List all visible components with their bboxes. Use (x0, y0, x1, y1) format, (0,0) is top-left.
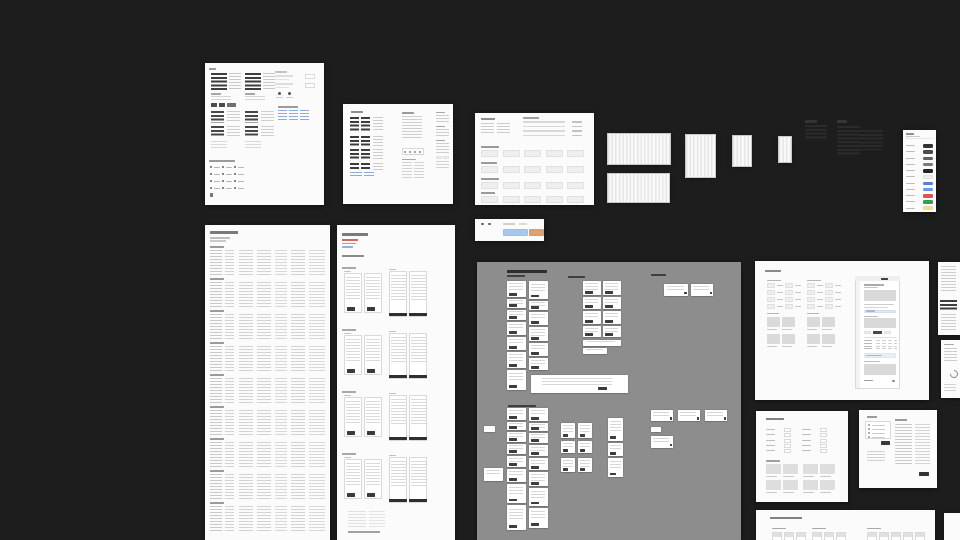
flow-column-header (568, 276, 585, 278)
artboard-components-overview--bar (888, 343, 892, 344)
artboard-grid-desktop-wide[interactable] (608, 134, 670, 164)
artboard-user-flow--card (507, 456, 526, 467)
artboard-text-specs--rows (350, 172, 362, 177)
artboard-input-forms-spec--rows (275, 442, 287, 467)
artboard-input-forms-spec--rows (257, 410, 271, 435)
artboard-input-forms-spec--rows (210, 442, 222, 467)
artboard-settings-blocks--bar (783, 476, 794, 477)
artboard-settings-blocks--outline (820, 428, 827, 432)
artboard-modal-spec--dot (868, 428, 870, 430)
artboard-components-overview--pill (807, 290, 815, 295)
artboard-components-overview--bar (777, 306, 783, 307)
artboard-color-palette--bar (906, 195, 915, 196)
artboard-card-layouts-spec--bar (344, 457, 351, 458)
artboard-table-cards--img (785, 533, 793, 537)
artboard-form-controls--pill (503, 182, 520, 189)
artboard-card-layouts-spec--rows (366, 339, 380, 361)
artboard-typography-styles--bar (209, 68, 216, 70)
artboard-input-forms-spec--rows (291, 282, 305, 307)
artboard-input-forms-spec--rows (291, 410, 305, 435)
artboard-typography-styles--bar (214, 188, 220, 189)
artboard-form-controls--pill (546, 150, 563, 157)
artboard-form-controls--pill (567, 182, 584, 189)
artboard-color-palette--bar (906, 176, 915, 177)
artboard-user-flow--card (507, 310, 526, 320)
design-canvas[interactable] (0, 0, 960, 540)
artboard-components-overview--img (782, 317, 795, 327)
artboard-settings-blocks--outline (820, 449, 827, 453)
artboard-card-layouts-spec--bar (348, 531, 380, 533)
artboard-user-flow--card (583, 281, 601, 295)
artboard-components-overview--bar (777, 292, 783, 293)
artboard-form-controls--bar (523, 126, 565, 128)
artboard-components-overview--bar (817, 306, 823, 307)
artboard-input-forms-spec--bar (210, 246, 224, 248)
artboard-form-controls--pill (503, 150, 520, 157)
artboard-text-specs--bars (361, 136, 370, 146)
artboard-form-controls--bar (481, 178, 499, 180)
artboard-form-controls--bar (572, 135, 582, 137)
artboard-color-palette--bar (906, 170, 915, 171)
artboard-components-overview--bar (876, 340, 880, 341)
artboard-components-overview--pill (767, 304, 775, 309)
artboard-input-forms-spec--bar (210, 502, 224, 504)
artboard-components-overview--pill (825, 297, 833, 302)
artboard-modal-spec--dot (868, 424, 870, 426)
artboard-settings-blocks--bar (766, 476, 777, 477)
artboard-text-specs--bar (402, 112, 414, 114)
artboard-form-controls--pill (524, 166, 541, 173)
artboard-components-overview--bar (767, 346, 777, 347)
artboard-input-forms-spec--rows (225, 314, 234, 339)
flow-title (507, 270, 547, 273)
artboard-typography-styles--rows (261, 111, 274, 123)
artboard-settings-blocks--bar (803, 476, 814, 477)
sample-button-orange (529, 229, 544, 236)
artboard-modal-spec--bar (872, 437, 885, 438)
artboard-input-forms-spec--rows (309, 442, 325, 467)
artboard-user-flow--cardp (484, 468, 503, 481)
artboard-user-flow--cardw (678, 410, 700, 421)
artboard-card-layouts-spec--rows (366, 463, 380, 485)
artboard-partial-right-top[interactable] (938, 262, 960, 335)
artboard-components-overview[interactable] (755, 261, 929, 400)
artboard-grid-mobile-small[interactable] (779, 137, 791, 162)
artboard-typography-styles--bars (211, 111, 224, 123)
artboard-components-overview--bar (777, 285, 783, 286)
artboard-partial-right-mid--rows (944, 384, 956, 392)
artboard-settings-blocks--img (766, 464, 781, 474)
artboard-typography-styles--bar (226, 188, 232, 189)
artboard-typography-styles--dot (222, 173, 224, 175)
artboard-input-forms-spec--rows (257, 506, 271, 531)
artboard-typography-styles--bar (238, 167, 244, 168)
artboard-text-specs--rows (373, 117, 383, 131)
artboard-input-forms-spec--rows (239, 282, 253, 307)
artboard-components-overview--bar (817, 299, 823, 300)
artboard-input-forms-spec[interactable] (205, 225, 330, 540)
artboard-components-overview--bar (807, 313, 819, 314)
artboard-color-palette--bar (906, 189, 915, 190)
artboard-settings-blocks--bar (802, 434, 811, 435)
artboard-text-specs[interactable] (343, 104, 453, 204)
artboard-card-layouts-spec--bar (342, 239, 358, 241)
artboard-text-specs--bar (402, 159, 416, 160)
artboard-components-overview--img (807, 317, 820, 327)
artboard-modal-spec--bar (872, 433, 885, 434)
artboard-input-forms-spec--bar (210, 310, 224, 312)
artboard-card-layouts-spec--bar (344, 333, 351, 334)
artboard-typography-styles--dot (210, 173, 212, 175)
artboard-typography-styles--outline (305, 83, 315, 88)
artboard-table-cards--bar (812, 528, 826, 530)
artboard-input-forms-spec--rows (225, 282, 234, 307)
artboard-typography-styles--bar (275, 71, 287, 73)
artboard-color-palette--bar (906, 138, 933, 139)
artboard-typography-styles--dot (210, 166, 212, 168)
artboard-modal-spec--bar (872, 425, 885, 426)
artboard-card-layouts-spec--btn (389, 499, 407, 503)
artboard-modal-spec--btn (919, 472, 929, 476)
artboard-components-overview--bar (864, 340, 872, 341)
artboard-settings-blocks--outline (820, 439, 827, 443)
artboard-table-cards--img (837, 533, 845, 537)
artboard-typography-styles--dot (234, 173, 236, 175)
artboard-typography-styles--dot (222, 180, 224, 182)
artboard-input-forms-spec--rows (210, 282, 222, 307)
artboard-user-flow--card (507, 432, 526, 442)
artboard-components-overview--bar (767, 329, 777, 330)
artboard-form-controls--bar (523, 135, 565, 137)
dark-theme-text-samples[interactable] (800, 112, 900, 164)
artboard-typography-styles--bars (211, 73, 227, 90)
artboard-text-specs--rows (436, 161, 449, 170)
artboard-user-flow--card (583, 326, 601, 337)
artboard-modal-spec--bar (895, 419, 907, 421)
artboard-user-flow--card (507, 281, 526, 297)
artboard-typography-styles[interactable] (205, 63, 324, 205)
artboard-settings-blocks--img (783, 480, 798, 490)
artboard-typography-styles--bar (219, 103, 225, 107)
artboard-card-layouts-spec--bar (389, 393, 396, 394)
artboard-input-forms-spec--rows (291, 506, 305, 531)
artboard-typography-styles--bar (214, 167, 220, 168)
artboard-card-layouts-spec--bar (389, 269, 396, 270)
artboard-card-layouts-spec--btn (347, 431, 355, 435)
image-placeholder (864, 364, 896, 375)
artboard-input-forms-spec--rows (225, 410, 234, 435)
artboard-typography-styles--bar (211, 103, 217, 107)
artboard-card-layouts-spec--btn (367, 493, 375, 497)
artboard-settings-blocks--img (820, 464, 835, 474)
artboard-components-overview--bar (864, 287, 878, 288)
artboard-text-specs--bars (361, 117, 370, 131)
artboard-settings-blocks--bar (766, 440, 775, 441)
artboard-form-controls--bar (572, 130, 582, 132)
artboard-text-specs--pill (436, 156, 442, 159)
artboard-input-forms-spec--rows (225, 346, 234, 371)
artboard-settings-blocks--bar (766, 418, 784, 420)
artboard-typography-styles--bar (226, 167, 232, 168)
artboard-input-forms-spec--rows (210, 410, 222, 435)
artboard-typography-styles--bar (275, 75, 293, 77)
artboard-text-specs--rows (402, 162, 412, 178)
artboard-grid-tablet[interactable] (686, 135, 715, 177)
artboard-settings-blocks--outline (820, 444, 827, 448)
artboard-components-overview--bar (864, 304, 894, 305)
artboard-input-forms-spec--rows (239, 346, 253, 371)
artboard-input-forms-spec--bar (210, 438, 224, 440)
artboard-form-controls--pill (524, 196, 541, 203)
artboard-input-forms-spec--rows (309, 250, 325, 275)
artboard-settings-blocks--img (803, 480, 818, 490)
artboard-input-forms-spec--rows (309, 506, 325, 531)
artboard-typography-styles--bar (275, 83, 293, 85)
artboard-typography-styles--rows (278, 110, 287, 121)
artboard-settings-blocks--bar (802, 440, 811, 441)
artboard-typography-styles--dot (222, 187, 224, 189)
artboard-settings-blocks--img (820, 480, 835, 490)
artboard-typography-styles--bar (286, 97, 293, 98)
artboard-typography-styles--bar (214, 181, 220, 182)
artboard-typography-styles--bars (211, 126, 224, 137)
artboard-input-forms-spec--rows (210, 474, 222, 499)
artboard-typography-styles--outline (305, 74, 315, 79)
artboard-color-palette--swatch (923, 175, 933, 179)
artboard-card-layouts-spec--bar (342, 267, 356, 269)
artboard-card-layouts-spec--rows (346, 277, 360, 299)
artboard-input-forms-spec--rows (210, 250, 222, 275)
artboard-components-overview--pill (785, 304, 793, 309)
artboard-typography-styles--rows (227, 126, 240, 137)
artboard-user-flow--chip (651, 427, 661, 432)
artboard-table-cards--img (868, 533, 876, 537)
artboard-table-cards--img (825, 533, 833, 537)
artboard-form-controls[interactable] (475, 113, 594, 205)
artboard-user-flow--card (578, 441, 592, 453)
artboard-grid-desktop[interactable] (608, 174, 669, 202)
artboard-components-overview--img (822, 317, 835, 327)
artboard-card-layouts-spec[interactable] (337, 225, 455, 540)
artboard-settings-blocks--outline (784, 449, 791, 453)
artboard-components-overview--bar (882, 340, 886, 341)
artboard-card-layouts-spec--rows (391, 275, 406, 301)
artboard-card-layouts-spec--bar (389, 455, 396, 456)
artboard-text-specs--rows (373, 163, 383, 170)
artboard-card-layouts-spec--rows (366, 401, 380, 423)
artboard-partial-right-mid--rows (944, 348, 957, 362)
artboard-card-layouts-spec--btn (389, 437, 407, 441)
artboard-components-overview--pill (825, 283, 833, 288)
artboard-components-overview--bar (864, 346, 872, 347)
artboard-form-controls--bar (523, 121, 565, 123)
artboard-input-forms-spec--bar (210, 406, 224, 408)
artboard-input-forms-spec--bar (210, 231, 238, 234)
artboard-input-forms-spec--rows (257, 314, 271, 339)
artboard-typography-styles--bars (245, 126, 258, 137)
flow-wide-card (531, 375, 628, 393)
artboard-user-flow--cardp (583, 348, 607, 354)
artboard-table-cards--img (892, 533, 900, 537)
artboard-color-palette[interactable] (903, 130, 936, 212)
artboard-partial-bottom-right[interactable] (944, 513, 960, 540)
artboard-input-forms-spec--rows (275, 474, 287, 499)
artboard-components-overview--bar (807, 346, 817, 347)
artboard-components-overview--img (782, 334, 795, 344)
artboard-text-specs--bars (350, 163, 359, 170)
artboard-user-flow--card (529, 508, 548, 528)
artboard-typography-styles--bars (245, 111, 258, 123)
artboard-components-overview--btn (881, 278, 888, 281)
artboard-color-palette--bar (906, 133, 914, 135)
artboard-form-controls--bar (572, 121, 582, 123)
artboard-form-controls--bar (523, 130, 565, 132)
artboard-input-forms-spec--rows (309, 410, 325, 435)
artboard-components-overview--bar (835, 299, 841, 300)
artboard-input-forms-spec--rows (275, 378, 287, 403)
artboard-components-overview--bar (864, 307, 888, 308)
artboard-color-palette--swatch (923, 194, 933, 198)
artboard-user-flow--card (603, 326, 621, 337)
artboard-components-overview--bar (767, 313, 779, 314)
artboard-settings-blocks--outline (820, 433, 827, 437)
artboard-form-controls--pill (567, 196, 584, 203)
artboard-card-layouts-spec--btn (409, 313, 427, 317)
artboard-card-layouts-spec--rows (391, 399, 406, 425)
artboard-user-flow--card (507, 337, 526, 350)
artboard-typography-styles--dot (210, 180, 212, 182)
artboard-input-forms-spec--rows (257, 474, 271, 499)
artboard-form-controls--pill (546, 182, 563, 189)
artboard-form-controls--pill (481, 166, 498, 173)
artboard-card-layouts-spec--btn (347, 307, 355, 311)
artboard-text-specs--bar (436, 112, 445, 113)
artboard-button-samples--dot (481, 223, 484, 226)
artboard-input-forms-spec--bar (210, 470, 224, 472)
flow-section-header (508, 405, 536, 407)
artboard-modal-spec--bar (867, 416, 877, 418)
artboard-table-cards--img (880, 533, 888, 537)
artboard-input-forms-spec--bar (210, 342, 224, 344)
artboard-user-flow--card (529, 358, 548, 370)
artboard-input-forms-spec--rows (291, 346, 305, 371)
artboard-components-overview--bar (864, 343, 872, 344)
artboard-input-forms-spec--rows (275, 282, 287, 307)
artboard-input-forms-spec--bar (210, 278, 224, 280)
artboard-input-forms-spec--rows (225, 250, 234, 275)
artboard-card-layouts-spec--rows (369, 511, 385, 527)
artboard-color-palette--bar (906, 164, 915, 165)
artboard-button-samples--bar (503, 223, 515, 225)
artboard-components-overview--bar (876, 346, 880, 347)
artboard-card-layouts-spec--bar (342, 246, 353, 248)
artboard-components-overview--bar (876, 343, 880, 344)
artboard-components-overview--bar (864, 361, 880, 362)
artboard-color-palette--swatch (923, 182, 933, 186)
artboard-settings-blocks--img (783, 464, 798, 474)
artboard-text-specs--bars (350, 136, 359, 146)
artboard-settings-blocks--bar (820, 476, 831, 477)
artboard-card-layouts-spec--bar (344, 271, 351, 272)
artboard-input-forms-spec--rows (291, 250, 305, 275)
artboard-typography-styles--bar (214, 174, 220, 175)
artboard-user-flow[interactable] (477, 262, 741, 540)
artboard-user-flow--card (603, 311, 621, 324)
artboard-modal-spec[interactable] (859, 410, 937, 488)
artboard-input-forms-spec--rows (257, 346, 271, 371)
artboard-grid-mobile[interactable] (733, 136, 751, 166)
artboard-input-forms-spec--rows (275, 250, 287, 275)
artboard-input-forms-spec--rows (275, 346, 287, 371)
artboard-user-flow--card (529, 408, 548, 421)
artboard-settings-blocks--outline (784, 444, 791, 448)
artboard-table-cards--bar (867, 528, 881, 530)
artboard-input-forms-spec--rows (210, 346, 222, 371)
artboard-user-flow--card (529, 433, 548, 443)
artboard-card-layouts-spec--btn (409, 375, 427, 379)
artboard-typography-styles--rows (229, 73, 241, 90)
artboard-user-flow--card (561, 441, 575, 453)
artboard-input-forms-spec--rows (257, 442, 271, 467)
artboard-input-forms-spec--rows (239, 250, 253, 275)
artboard-user-flow--card (529, 281, 548, 299)
artboard-text-specs--rows (414, 162, 424, 178)
artboard-color-palette--bar (906, 183, 915, 184)
artboard-modal-spec--rows (867, 451, 885, 462)
artboard-components-overview--bar (777, 299, 783, 300)
artboard-components-overview--bar (807, 280, 821, 281)
artboard-user-flow--card (578, 423, 592, 438)
artboard-form-controls--pill (481, 182, 498, 189)
artboard-color-palette--swatch (923, 157, 933, 161)
artboard-components-overview--bar (822, 346, 832, 347)
artboard-partial-right-mid--bar (944, 344, 954, 345)
artboard-components-overview--img (807, 334, 820, 344)
artboard-user-flow--card (529, 327, 548, 341)
artboard-modal-spec--rows (915, 424, 930, 466)
artboard-card-layouts-spec--rows (411, 275, 426, 301)
artboard-user-flow--card (608, 443, 623, 456)
artboard-typography-styles--bar (238, 174, 244, 175)
artboard-form-controls--pill (524, 150, 541, 157)
artboard-color-palette--bar (906, 151, 915, 152)
artboard-text-specs--pill (443, 156, 449, 159)
artboard-card-layouts-spec--btn (389, 375, 407, 379)
artboard-user-flow--card (583, 311, 601, 324)
artboard-typography-styles--bar (238, 188, 244, 189)
artboard-components-overview--img (767, 334, 780, 344)
dark-theme-text-samples--bar (805, 120, 817, 123)
artboard-components-overview--pill (767, 290, 775, 295)
artboard-text-specs--bar (409, 154, 412, 155)
artboard-input-forms-spec--rows (309, 346, 325, 371)
artboard-button-samples[interactable] (475, 219, 544, 241)
artboard-partial-right-mid[interactable] (941, 340, 960, 398)
artboard-card-layouts-spec--bar (342, 255, 364, 257)
artboard-text-specs--bar (419, 154, 422, 155)
artboard-settings-blocks[interactable] (756, 411, 848, 502)
artboard-table-cards--img (916, 533, 924, 537)
artboard-table-cards[interactable] (756, 510, 935, 540)
artboard-card-layouts-spec--rows (366, 277, 380, 299)
artboard-user-flow--card (561, 423, 575, 438)
artboard-table-cards--img (797, 533, 805, 537)
artboard-user-flow--card (507, 469, 526, 482)
artboard-user-flow--card (578, 458, 592, 472)
artboard-typography-styles--dot (234, 180, 236, 182)
artboard-settings-blocks--bar (803, 492, 814, 493)
artboard-components-overview--btn (873, 331, 882, 334)
